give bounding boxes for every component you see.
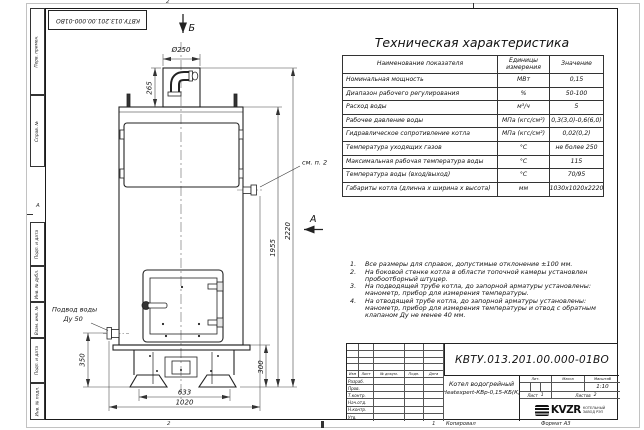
view-a-label: А xyxy=(309,214,317,225)
spec-col-header: Единицы измерения xyxy=(498,56,550,74)
boiler-outline xyxy=(113,68,250,387)
spec-cell: МПа (кгс/см²) xyxy=(498,115,550,129)
lifting-pin-right xyxy=(234,94,237,107)
title-block-right: Лит. Масса Масштаб 1:10 Лист1 Листов2 KV… xyxy=(519,376,619,421)
door-hinge-top xyxy=(208,284,218,289)
spec-col-header: Наименование показателя xyxy=(343,56,498,74)
bolt-dots xyxy=(149,286,219,372)
sheets-label: Листов xyxy=(575,393,590,398)
see-note-callout: см. п. 2 xyxy=(302,159,327,167)
spec-cell: Гидравлическое сопротивление котла xyxy=(343,128,498,142)
signature-rows: Разраб. Пров. Т.контр. Нач.отд. Н.контр.… xyxy=(347,378,444,421)
note-item: 3.На подводящей трубе котла, до запорной… xyxy=(350,283,600,297)
fittings xyxy=(107,94,257,339)
spec-col-header: Значение xyxy=(550,56,603,74)
spec-cell: 70/95 xyxy=(550,169,603,183)
note-item: 4.На отводящей трубе котла, до запорной … xyxy=(350,298,600,319)
view-b-label: Б xyxy=(189,23,196,34)
copied-label: Копировал xyxy=(446,421,476,427)
spec-cell: °С xyxy=(498,169,550,183)
spec-cell: 50-100 xyxy=(550,88,603,102)
kvzr-logo-text: KVZR xyxy=(551,404,581,416)
left-foot xyxy=(130,375,167,387)
spec-cell: Температура уходящих газов xyxy=(343,142,498,156)
water-supply-label-2: Ду 50 xyxy=(63,315,83,323)
doc-number: КВТУ.013.201.00.000-01ВО xyxy=(444,344,619,376)
spec-cell: 0,02(0,2) xyxy=(550,128,603,142)
door-hinge-bottom xyxy=(208,320,218,325)
spec-cell: Габариты котла (длинна х ширина х высота… xyxy=(343,183,498,197)
sheet-label: Лист xyxy=(527,393,537,398)
dim-base-width: 633 xyxy=(178,389,191,397)
dim-chimney-height: 265 xyxy=(146,81,154,95)
water-inlet-fitting xyxy=(107,328,112,340)
sheet-value: 1 xyxy=(541,393,544,398)
upper-access-panel xyxy=(124,123,239,187)
drawing-sheet: Перв. примен. Справ. № Подп. и дата Инв.… xyxy=(0,0,644,430)
door-handle xyxy=(148,303,167,308)
dim-base-height: 300 xyxy=(257,360,265,374)
spec-cell: Максимальная рабочая температура воды xyxy=(343,156,498,170)
spec-cell: МПа (кгс/см²) xyxy=(498,128,550,142)
spec-cell: Номинальная мощность xyxy=(343,74,498,88)
mass-label: Масса xyxy=(552,376,585,383)
sampling-fitting xyxy=(243,187,251,194)
sheets-value: 2 xyxy=(594,393,597,398)
dim-body-height: 1955 xyxy=(269,239,277,257)
title-block-header-row: Изм Лист № докум. Подп. Дата xyxy=(347,371,444,378)
spec-cell: м³/ч xyxy=(498,101,550,115)
dim-total-width: 1020 xyxy=(176,399,194,407)
lifting-pin-left xyxy=(127,94,130,107)
notes-list: 1.Все размеры для справок, допустимые от… xyxy=(350,261,600,319)
spec-cell: °С xyxy=(498,142,550,156)
spec-cell: не более 250 xyxy=(550,142,603,156)
kvzr-logo-icon xyxy=(535,405,549,416)
change-record-grid xyxy=(347,344,444,371)
dim-chimney-diameter: Ø250 xyxy=(171,46,191,54)
spec-table: Наименование показателя Единицы измерени… xyxy=(342,55,604,197)
view-arrows xyxy=(183,14,323,230)
spec-cell: 0,15 xyxy=(550,74,603,88)
spec-cell: Диапазон рабочего регулирования xyxy=(343,88,498,102)
dim-total-height: 2220 xyxy=(284,222,292,240)
spec-cell: 0,3(3,0)-0,6(6,0) xyxy=(550,115,603,129)
bottom-flange xyxy=(113,345,250,350)
spec-cell: мм xyxy=(498,183,550,197)
scale-label: Масштаб xyxy=(585,376,620,383)
spec-cell: Расход воды xyxy=(343,101,498,115)
title-block: Изм Лист № докум. Подп. Дата Разраб. Про… xyxy=(346,343,618,420)
spec-cell: Рабочее давление воды xyxy=(343,115,498,129)
note-item: 1.Все размеры для справок, допустимые от… xyxy=(350,261,600,268)
format-label: Формат А3 xyxy=(541,421,571,427)
spec-cell: Температура воды (вход/выход) xyxy=(343,169,498,183)
right-foot xyxy=(199,375,236,387)
spec-cell: 115 xyxy=(550,156,603,170)
product-name: Котел водогрейный Heatexpert-КВр-0,15-КБ… xyxy=(444,376,519,421)
chimney-elbow xyxy=(168,71,198,96)
lit-label: Лит. xyxy=(520,376,552,383)
scale-value: 1:10 xyxy=(585,383,620,392)
spec-cell: МВт xyxy=(498,74,550,88)
spec-cell: % xyxy=(498,88,550,102)
water-supply-label-1: Подвод воды xyxy=(52,306,97,314)
spec-cell: °С xyxy=(498,156,550,170)
spec-cell: 5 xyxy=(550,101,603,115)
dim-inlet-height: 350 xyxy=(79,353,87,367)
manufacturer-logo: KVZR КОТЕЛЬНЫЙ ЗАВОД РЭП xyxy=(520,399,620,421)
spec-cell: 1030х1020х2220 xyxy=(550,183,603,197)
spec-table-title: Техническая характеристика xyxy=(342,35,602,50)
note-item: 2.На боковой стенке котла в области топо… xyxy=(350,269,600,283)
